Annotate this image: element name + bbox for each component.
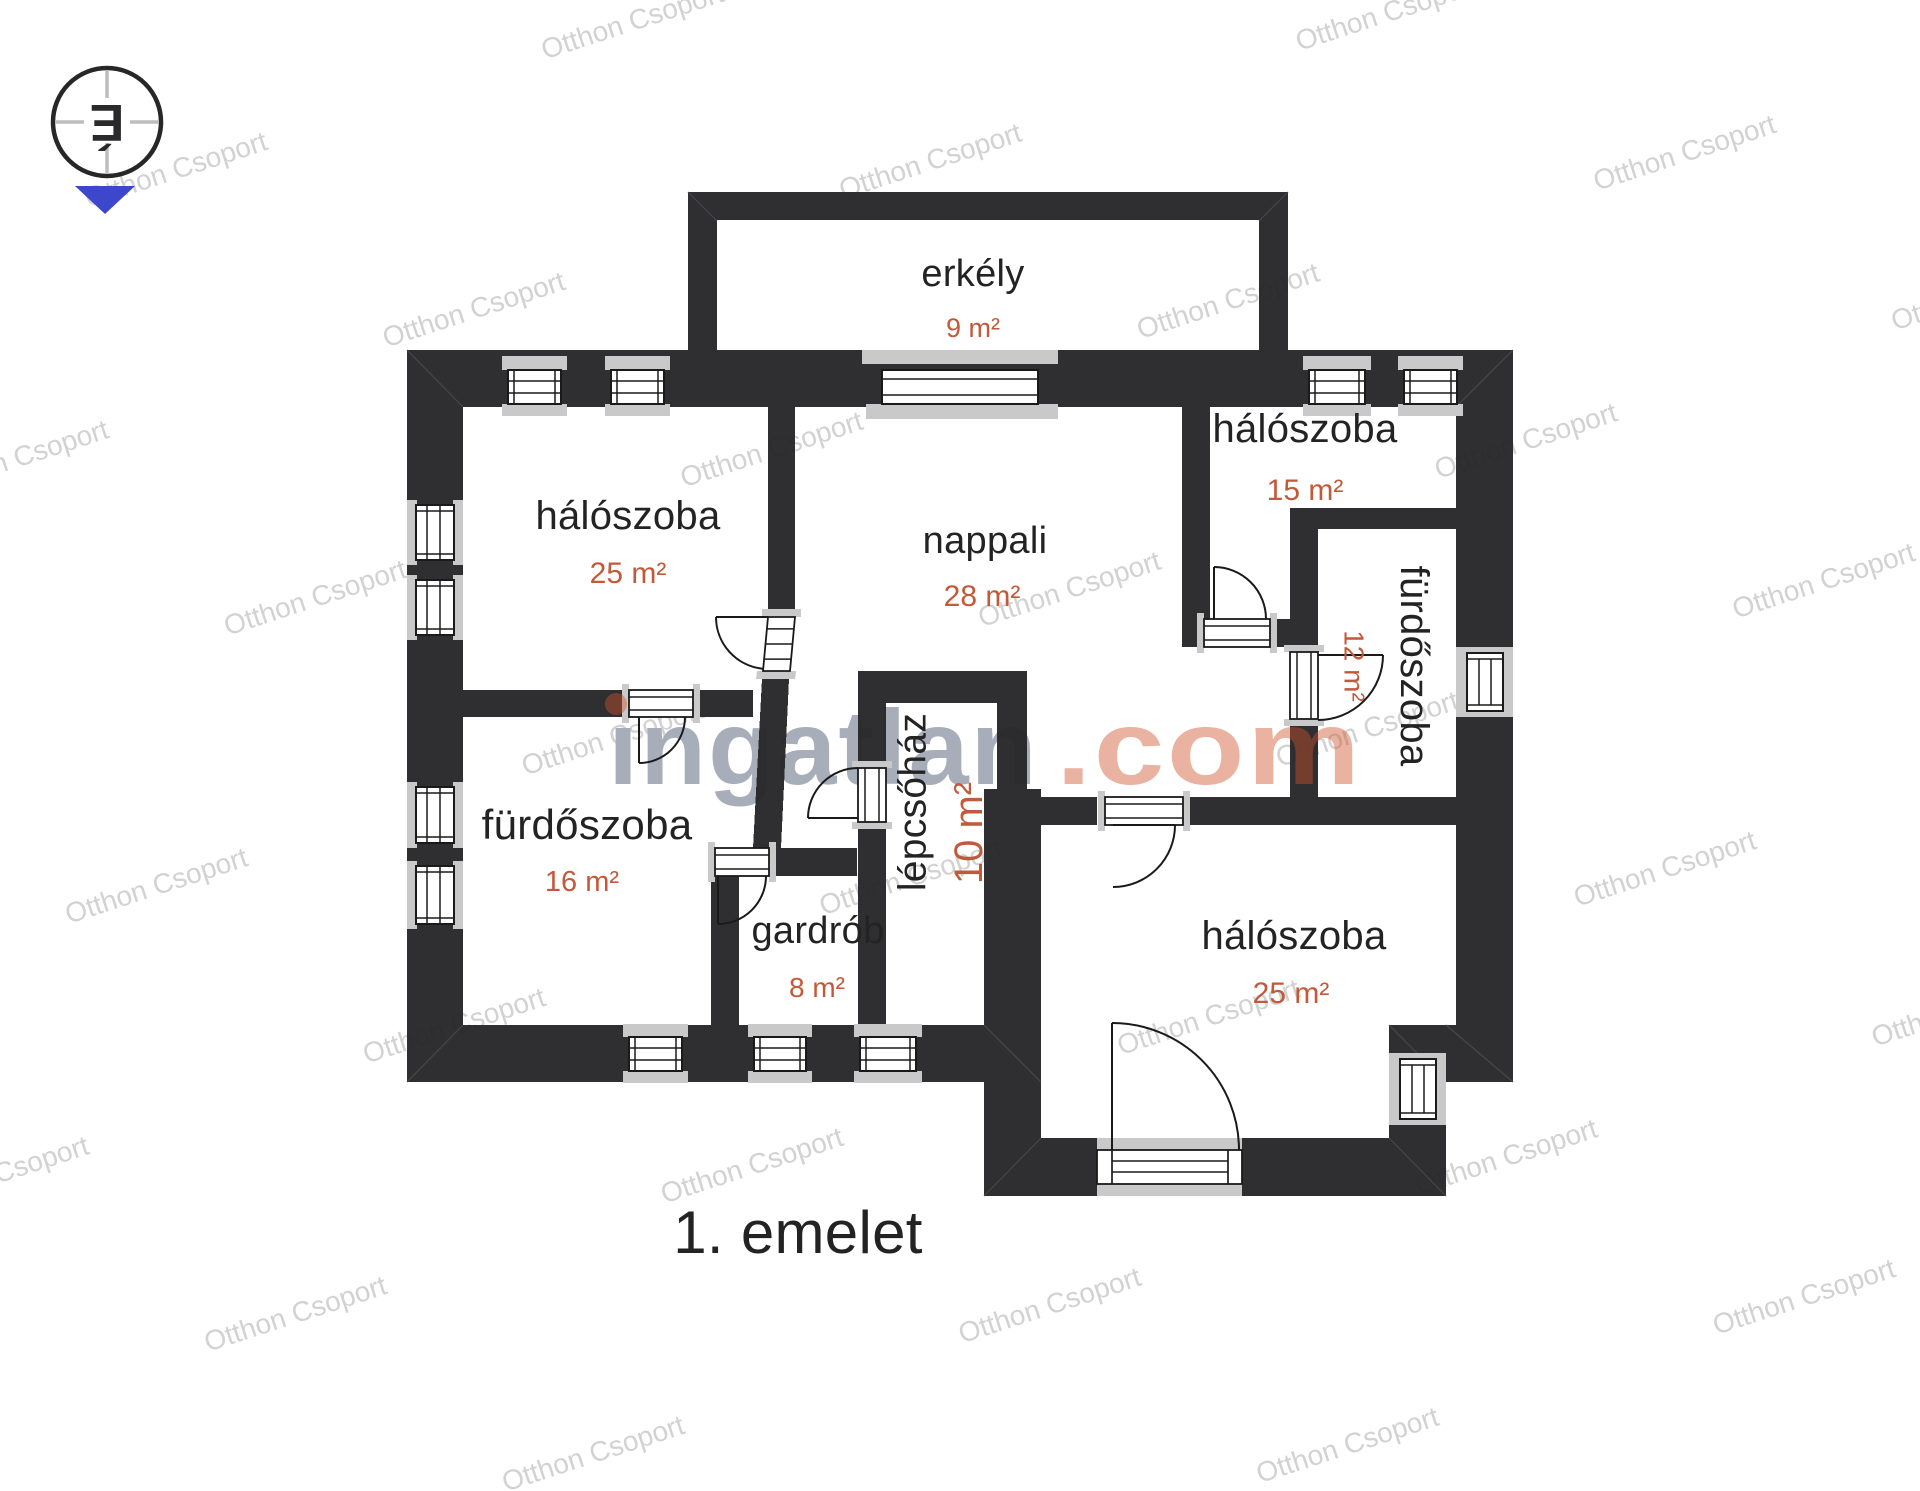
svg-text:hálószoba: hálószoba [1212, 407, 1398, 451]
svg-text:25 m²: 25 m² [1253, 977, 1330, 1010]
svg-text:28 m²: 28 m² [944, 580, 1021, 613]
svg-text:9 m²: 9 m² [946, 313, 1000, 343]
svg-text:15 m²: 15 m² [1267, 474, 1344, 507]
svg-text:1. emelet: 1. emelet [673, 1199, 923, 1266]
svg-text:É: É [90, 93, 125, 151]
svg-text:erkély: erkély [921, 253, 1024, 295]
svg-text:gardrób: gardrób [751, 910, 884, 952]
svg-text:hálószoba: hálószoba [1201, 914, 1387, 958]
svg-text:16 m²: 16 m² [545, 866, 619, 898]
svg-text:25 m²: 25 m² [590, 557, 667, 590]
svg-text:.com: .com [1056, 688, 1362, 807]
svg-text:12 m²: 12 m² [1339, 630, 1370, 702]
svg-text:nappali: nappali [923, 520, 1048, 562]
svg-text:10 m²: 10 m² [947, 782, 991, 884]
svg-text:fürdőszoba: fürdőszoba [1392, 566, 1436, 767]
svg-text:8 m²: 8 m² [789, 972, 845, 1003]
svg-text:hálószoba: hálószoba [535, 494, 721, 538]
svg-text:lépcsőház: lépcsőház [892, 713, 935, 891]
svg-text:fürdőszoba: fürdőszoba [482, 801, 693, 848]
